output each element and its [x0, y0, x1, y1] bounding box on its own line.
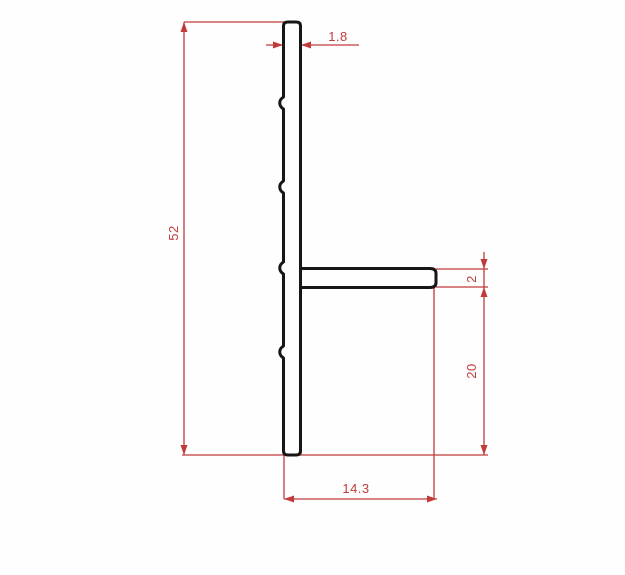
arrowhead-left-icon	[284, 496, 294, 503]
arrowheads-group	[181, 22, 488, 503]
dim-label-bottom-width: 14.3	[342, 481, 369, 496]
arrowhead-right-icon	[273, 42, 283, 49]
arrowhead-down-icon	[481, 445, 488, 455]
dim-label-web-thickness: 1.8	[328, 29, 348, 44]
profile-dimension-drawing: 1.8 52 2 20 14.3	[0, 0, 625, 575]
dim-label-flange-to-bottom: 20	[464, 363, 479, 378]
technical-drawing-canvas: 1.8 52 2 20 14.3	[0, 0, 625, 575]
arrowhead-up-icon	[181, 22, 188, 32]
dim-label-flange-thickness: 2	[464, 275, 479, 283]
arrowhead-left-icon	[301, 42, 311, 49]
arrowhead-down-icon	[481, 259, 488, 269]
dim-label-overall-height: 52	[166, 225, 181, 240]
profile-web	[280, 22, 301, 455]
dimension-labels-group: 1.8 52 2 20 14.3	[166, 29, 479, 496]
arrowhead-right-icon	[427, 496, 437, 503]
dimension-lines-group	[182, 22, 488, 499]
arrowhead-up-icon	[481, 287, 488, 297]
profile-outline-group	[280, 22, 436, 455]
arrowhead-down-icon	[181, 445, 188, 455]
profile-flange	[300, 269, 436, 288]
